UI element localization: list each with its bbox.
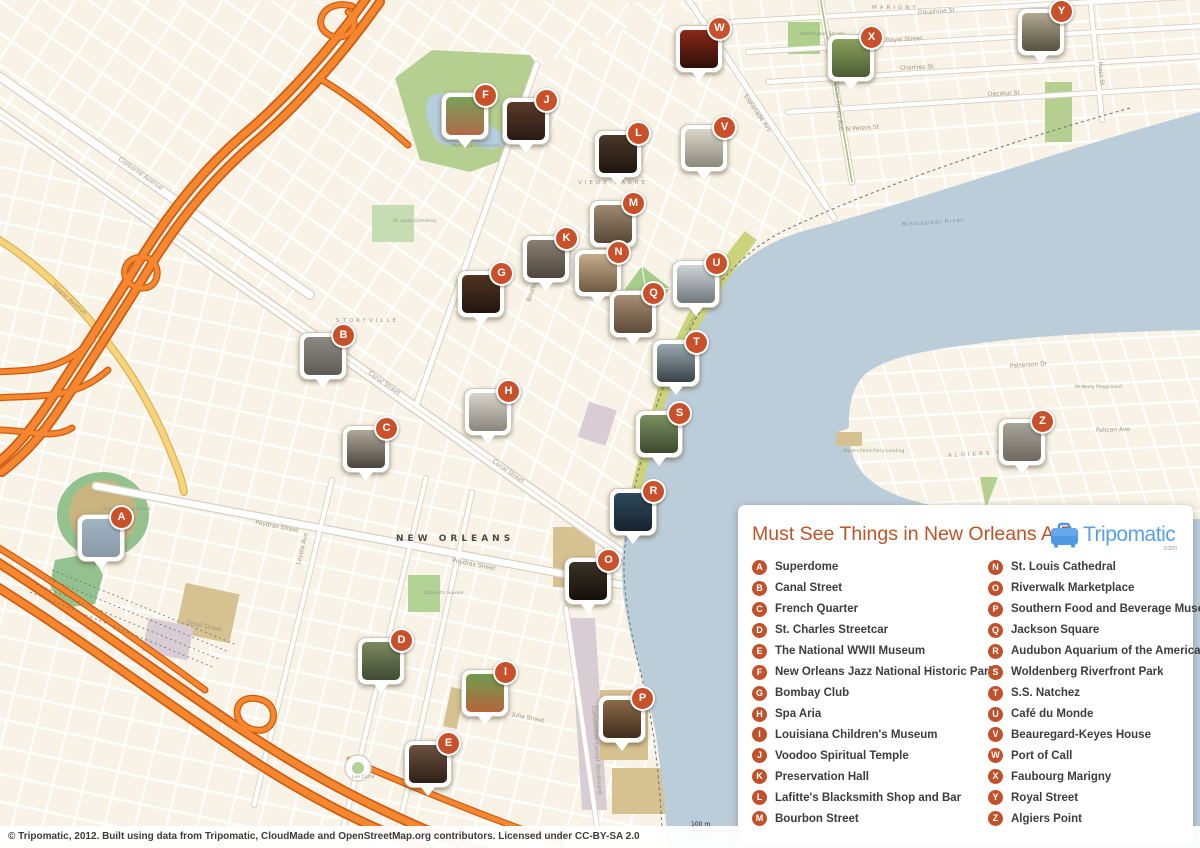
marker-tail: [358, 471, 374, 481]
legend-item-q: QJackson Square: [988, 620, 1188, 641]
legend-badge: E: [752, 644, 767, 659]
marker-tail: [315, 378, 331, 388]
legend-item-label: Bourbon Street: [775, 813, 859, 825]
legend-item-label: Algiers Point: [1011, 813, 1082, 825]
marker-letter-badge: E: [436, 731, 461, 756]
legend-item-c: CFrench Quarter: [752, 599, 988, 620]
marker-letter-badge: S: [667, 401, 692, 426]
marker-tail: [580, 603, 596, 613]
marker-tail: [477, 715, 493, 725]
legend-item-label: S.S. Natchez: [1011, 687, 1080, 699]
legend-item-l: LLafitte's Blacksmith Shop and Bar: [752, 787, 988, 808]
map-marker-q[interactable]: Q: [609, 290, 657, 338]
legend-item-label: Voodoo Spiritual Temple: [775, 750, 909, 762]
legend-item-s: SWoldenberg Riverfront Park: [988, 662, 1188, 683]
legend-item-j: JVoodoo Spiritual Temple: [752, 745, 988, 766]
logo-tld: .com: [1162, 545, 1177, 552]
legend-item-u: UCafé du Monde: [988, 704, 1188, 725]
marker-tail: [93, 560, 109, 570]
map-marker-b[interactable]: B: [299, 332, 347, 380]
legend-item-f: FNew Orleans Jazz National Historic Park: [752, 662, 988, 683]
marker-tail: [538, 281, 554, 291]
map-label-lee-circle: Lee Circle: [352, 774, 375, 780]
marker-letter-badge: D: [389, 628, 414, 653]
marker-letter-badge: X: [859, 25, 884, 50]
legend-badge: Y: [988, 790, 1003, 805]
logo-wordmark: Tripomatic: [1083, 523, 1175, 547]
marker-tail: [473, 316, 489, 326]
legend-item-label: Lafitte's Blacksmith Shop and Bar: [775, 792, 961, 804]
legend-item-x: XFaubourg Marigny: [988, 766, 1188, 787]
legend-item-label: French Quarter: [775, 603, 858, 615]
legend-badge: N: [988, 560, 1003, 575]
legend-item-a: ASuperdome: [752, 557, 988, 578]
legend-title: Must See Things in New Orleans A-Z: [752, 523, 1072, 546]
marker-letter-badge: A: [109, 505, 134, 530]
marker-letter-badge: T: [684, 330, 709, 355]
legend-badge: Q: [988, 623, 1003, 638]
legend-column-1: ASuperdomeBCanal StreetCFrench QuarterDS…: [752, 557, 988, 829]
legend-item-v: VBeauregard-Keyes House: [988, 725, 1188, 746]
marker-letter-badge: B: [331, 323, 356, 348]
map-marker-h[interactable]: H: [464, 388, 512, 436]
legend-item-label: Woldenberg Riverfront Park: [1011, 666, 1164, 678]
map-marker-z[interactable]: Z: [998, 418, 1046, 466]
map-marker-g[interactable]: G: [457, 270, 505, 318]
map-marker-u[interactable]: U: [672, 260, 720, 308]
marker-letter-badge: G: [489, 261, 514, 286]
marker-tail: [420, 786, 436, 796]
legend-item-d: DSt. Charles Streetcar: [752, 620, 988, 641]
marker-tail: [1033, 54, 1049, 64]
marker-tail: [668, 385, 684, 395]
map-label-mcneely-playground: McNeely Playground: [1075, 384, 1122, 390]
map-marker-r[interactable]: R: [609, 488, 657, 536]
map-marker-w[interactable]: W: [675, 25, 723, 73]
map-label-algiers-point-ferry-landing: Algiers Point Ferry Landing: [843, 448, 905, 454]
tripomatic-logo: Tripomatic .com: [1049, 521, 1179, 553]
marker-letter-badge: Z: [1030, 409, 1055, 434]
map-marker-p[interactable]: P: [598, 695, 646, 743]
marker-letter-badge: R: [641, 479, 666, 504]
legend-item-p: PSouthern Food and Beverage Museum: [988, 599, 1188, 620]
map-label-new-orleans: NEW ORLEANS: [396, 534, 514, 544]
marker-tail: [691, 71, 707, 81]
legend-item-label: Spa Aria: [775, 708, 821, 720]
marker-letter-badge: L: [626, 121, 651, 146]
legend-column-2: NSt. Louis CathedralORiverwalk Marketpla…: [988, 557, 1188, 829]
legend-badge: G: [752, 686, 767, 701]
marker-letter-badge: V: [712, 115, 737, 140]
map-marker-j[interactable]: J: [502, 97, 550, 145]
attribution-bar: © Tripomatic, 2012. Built using data fro…: [0, 826, 1200, 848]
legend-item-label: St. Charles Streetcar: [775, 624, 888, 636]
legend-item-label: Audubon Aquarium of the Americas: [1011, 645, 1200, 657]
map-label-lafayette-square: Lafayette Square: [424, 590, 464, 596]
legend-badge: H: [752, 707, 767, 722]
marker-tail: [610, 176, 626, 186]
legend-item-label: Faubourg Marigny: [1011, 771, 1111, 783]
legend-badge: W: [988, 748, 1003, 763]
legend-badge: O: [988, 581, 1003, 596]
marker-letter-badge: M: [621, 191, 646, 216]
legend-item-label: Canal Street: [775, 582, 842, 594]
legend-badge: R: [988, 644, 1003, 659]
marker-tail: [688, 306, 704, 316]
legend-badge: M: [752, 811, 767, 826]
legend-item-label: Café du Monde: [1011, 708, 1093, 720]
legend-item-g: GBombay Club: [752, 683, 988, 704]
marker-letter-badge: P: [630, 686, 655, 711]
marker-letter-badge: U: [704, 251, 729, 276]
legend-item-b: BCanal Street: [752, 578, 988, 599]
marker-letter-badge: F: [473, 83, 498, 108]
marker-tail: [625, 336, 641, 346]
marker-letter-badge: C: [374, 416, 399, 441]
marker-letter-badge: H: [496, 379, 521, 404]
marker-letter-badge: J: [534, 88, 559, 113]
legend-item-h: HSpa Aria: [752, 704, 988, 725]
map-screenshot: NEW ORLEANSMississippi RiverSTORYVILLEVI…: [0, 0, 1200, 848]
map-marker-t[interactable]: T: [652, 339, 700, 387]
legend-item-label: New Orleans Jazz National Historic Park: [775, 666, 995, 678]
map-marker-k[interactable]: K: [522, 235, 570, 283]
marker-letter-badge: Q: [641, 281, 666, 306]
legend-item-i: ILouisiana Children's Museum: [752, 725, 988, 746]
marker-letter-badge: N: [606, 240, 631, 265]
suitcase-icon: [1049, 521, 1081, 549]
map-marker-f[interactable]: F: [441, 92, 489, 140]
legend-badge: I: [752, 727, 767, 742]
legend-item-k: KPreservation Hall: [752, 766, 988, 787]
legend-badge: X: [988, 769, 1003, 784]
marker-tail: [518, 143, 534, 153]
marker-tail: [696, 170, 712, 180]
legend-badge: B: [752, 581, 767, 596]
legend-item-o: ORiverwalk Marketplace: [988, 578, 1188, 599]
map-marker-x[interactable]: X: [827, 34, 875, 82]
map-marker-v[interactable]: V: [680, 124, 728, 172]
legend-columns: ASuperdomeBCanal StreetCFrench QuarterDS…: [738, 557, 1193, 829]
map-label-pelican-ave: Pelican Ave: [1096, 426, 1131, 434]
marker-tail: [480, 434, 496, 444]
marker-letter-badge: O: [596, 548, 621, 573]
marker-tail: [614, 741, 630, 751]
map-marker-l[interactable]: L: [594, 130, 642, 178]
legend-badge: S: [988, 665, 1003, 680]
legend-item-label: St. Louis Cathedral: [1011, 561, 1116, 573]
map-marker-d[interactable]: D: [357, 637, 405, 685]
legend-item-label: Preservation Hall: [775, 771, 869, 783]
marker-tail: [373, 683, 389, 693]
map-marker-c[interactable]: C: [342, 425, 390, 473]
legend-item-t: TS.S. Natchez: [988, 683, 1188, 704]
marker-letter-badge: W: [707, 16, 732, 41]
legend-item-r: RAudubon Aquarium of the Americas: [988, 641, 1188, 662]
marker-tail: [843, 80, 859, 90]
marker-tail: [1014, 464, 1030, 474]
legend-badge: U: [988, 707, 1003, 722]
map-marker-i[interactable]: I: [461, 669, 509, 717]
legend-item-n: NSt. Louis Cathedral: [988, 557, 1188, 578]
legend-item-label: Royal Street: [1011, 792, 1078, 804]
legend-item-label: Bombay Club: [775, 687, 849, 699]
legend-item-w: WPort of Call: [988, 745, 1188, 766]
marker-letter-badge: K: [554, 226, 579, 251]
legend-item-label: Jackson Square: [1011, 624, 1099, 636]
map-marker-y[interactable]: Y: [1017, 8, 1065, 56]
marker-tail: [457, 138, 473, 148]
legend-badge: L: [752, 790, 767, 805]
legend-panel: Must See Things in New Orleans A-Z Tripo…: [738, 505, 1193, 845]
marker-tail: [625, 534, 641, 544]
legend-item-y: YRoyal Street: [988, 787, 1188, 808]
map-marker-e[interactable]: E: [404, 740, 452, 788]
legend-item-label: Port of Call: [1011, 750, 1072, 762]
attribution-text: © Tripomatic, 2012. Built using data fro…: [0, 826, 1200, 848]
marker-letter-badge: I: [493, 660, 518, 685]
legend-item-label: Louisiana Children's Museum: [775, 729, 937, 741]
legend-badge: A: [752, 560, 767, 575]
legend-badge: D: [752, 623, 767, 638]
marker-tail: [590, 295, 606, 305]
map-marker-o[interactable]: O: [564, 557, 612, 605]
legend-badge: T: [988, 686, 1003, 701]
marker-letter-badge: Y: [1049, 0, 1074, 24]
legend-item-label: Beauregard-Keyes House: [1011, 729, 1151, 741]
legend-badge: V: [988, 727, 1003, 742]
map-label-marigny: MARIGNY: [872, 5, 919, 11]
map-label-st-louis-cemetery: St. Louis Cemetery: [393, 218, 437, 224]
legend-badge: P: [988, 602, 1003, 617]
legend-item-label: Superdome: [775, 561, 838, 573]
legend-badge: C: [752, 602, 767, 617]
legend-item-label: Riverwalk Marketplace: [1011, 582, 1134, 594]
legend-badge: K: [752, 769, 767, 784]
map-marker-s[interactable]: S: [635, 410, 683, 458]
legend-badge: F: [752, 665, 767, 680]
legend-item-e: EThe National WWII Museum: [752, 641, 988, 662]
legend-badge: Z: [988, 811, 1003, 826]
legend-item-label: Southern Food and Beverage Museum: [1011, 603, 1200, 615]
marker-tail: [651, 456, 667, 466]
legend-badge: J: [752, 748, 767, 763]
legend-item-label: The National WWII Museum: [775, 645, 925, 657]
map-marker-a[interactable]: A: [77, 514, 125, 562]
